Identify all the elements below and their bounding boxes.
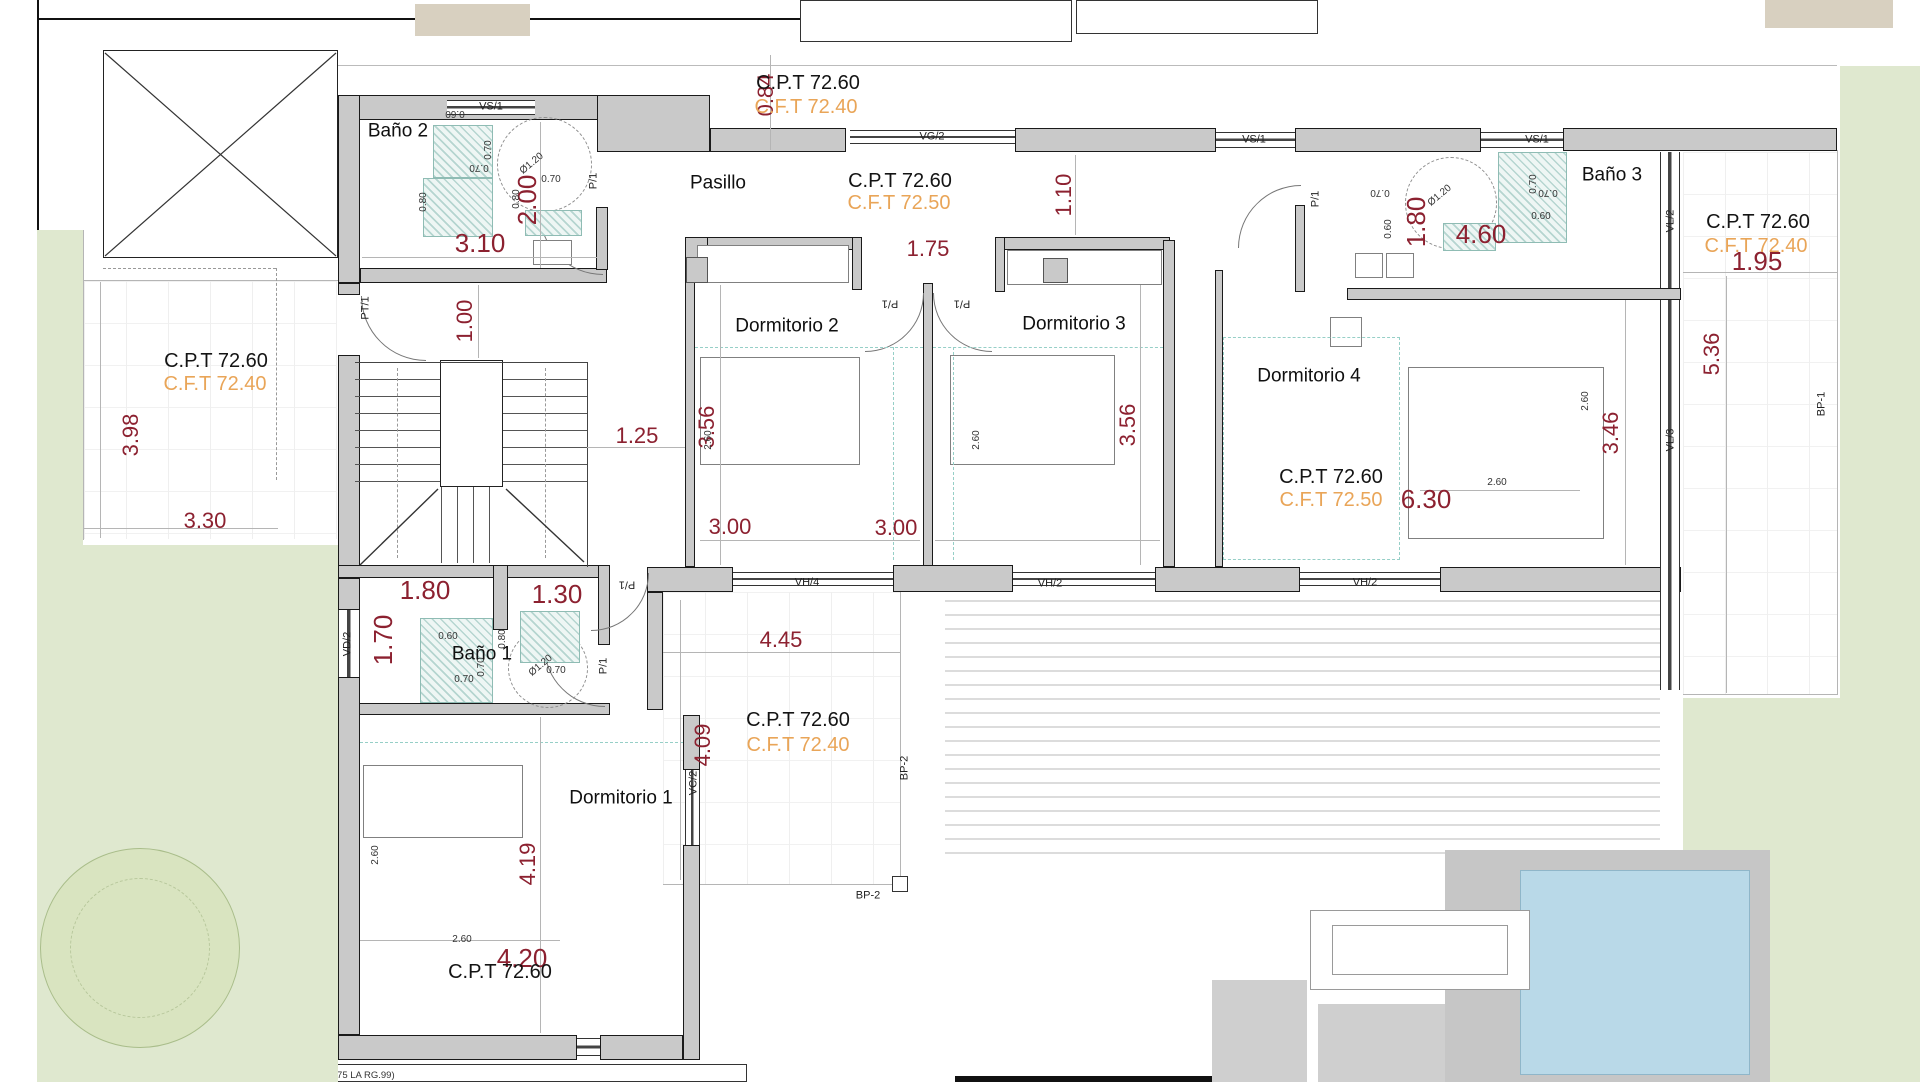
- opening-label-vc2: VC/2: [689, 771, 700, 795]
- dim-label: 3.10: [455, 230, 506, 256]
- dim-label: 1.80: [400, 577, 451, 603]
- dim-label: 1.30: [532, 581, 583, 607]
- dim-label-small: 0.70: [1370, 187, 1389, 197]
- dashed-teal-line: [933, 347, 1163, 348]
- window-vs1: [1481, 132, 1563, 148]
- vanity-basin: [1386, 253, 1414, 278]
- wall: [338, 703, 610, 715]
- wall: [597, 95, 710, 152]
- wall: [493, 565, 508, 630]
- closet: [1007, 250, 1162, 285]
- opening-label-vl3: VL/3: [1666, 429, 1677, 452]
- level-cft: C.F.T 72.40: [163, 374, 266, 394]
- room-label-bano2: Baño 2: [368, 122, 428, 141]
- opening-label-p1: P/1: [619, 579, 636, 590]
- stair-edge: [355, 362, 587, 363]
- dim-label: 3.46: [1600, 412, 1622, 455]
- dim-line: [663, 652, 900, 653]
- dim-label-small: 0.80: [512, 189, 522, 208]
- wall: [338, 95, 360, 283]
- closet: [697, 245, 849, 283]
- dim-line: [1625, 300, 1626, 565]
- dim-label: 3.00: [875, 517, 918, 539]
- level-cpt: C.P.T 72.60: [746, 710, 850, 730]
- room-label-bano1: Baño 1: [452, 645, 512, 664]
- toilet: [533, 240, 572, 265]
- opening-label-vh4: VH/4: [795, 578, 819, 589]
- opening-label-vg2: VG/2: [919, 132, 944, 143]
- dashed-teal-line: [695, 347, 923, 348]
- door-dorm3: [909, 210, 1076, 377]
- window-vh2: [1013, 572, 1155, 586]
- dim-label: 1.80: [1403, 197, 1429, 248]
- dim-label-small: 0.60: [438, 632, 457, 642]
- sheet-swatch: [415, 4, 530, 36]
- dim-label: 4.09: [692, 724, 714, 767]
- sheet-swatch: [1765, 0, 1893, 28]
- wall: [1440, 567, 1681, 592]
- opening-label-p1: P/1: [882, 298, 899, 309]
- line: [1683, 694, 1837, 695]
- opening-label-vl2: VL/2: [1666, 210, 1677, 233]
- dim-line: [83, 528, 278, 529]
- dim-label: 3.98: [120, 414, 142, 457]
- room-label-dormitorio2: Dormitorio 2: [735, 317, 838, 336]
- dim-line: [1726, 276, 1727, 693]
- room-label-bano3: Baño 3: [1582, 166, 1642, 185]
- dashed-line: [103, 268, 276, 269]
- door-dorm4: [1212, 159, 1390, 337]
- wall: [647, 567, 733, 592]
- dim-label-small: 0.60: [1384, 219, 1394, 238]
- opening-label-p1: P/1: [599, 658, 610, 675]
- opening-label-p1: P/1: [589, 173, 600, 190]
- opening-label-vh2: VH/2: [1353, 578, 1377, 589]
- wall: [1163, 240, 1175, 567]
- line: [83, 230, 84, 540]
- dim-line: [540, 717, 541, 1033]
- dim-label: 1.75: [907, 238, 950, 260]
- opening-label-vs1: VS/1: [1525, 135, 1549, 146]
- dim-label-small: 2.60: [371, 845, 381, 864]
- dim-label-small: 0.70: [454, 675, 473, 685]
- wall: [1215, 270, 1223, 567]
- window-gap: [577, 1038, 600, 1056]
- dim-label: 1.70: [370, 615, 396, 666]
- wall: [1155, 567, 1300, 592]
- dim-label: 1.10: [1053, 174, 1075, 217]
- dim-label-small: 0.70: [541, 175, 560, 185]
- window-vl3: [1660, 300, 1680, 690]
- wall: [600, 1035, 683, 1060]
- opening-label-bp1: BP-1: [1817, 392, 1828, 416]
- wall: [923, 283, 933, 567]
- deck-terrace: [945, 600, 1660, 855]
- sheet-box: [800, 0, 1072, 42]
- void-crossed-box: [103, 50, 338, 258]
- wall: [893, 565, 1013, 592]
- stair-treads-lower: [441, 487, 503, 563]
- wall: [683, 845, 700, 1060]
- opening-label-bp2: BP-2: [856, 891, 880, 902]
- paving-feature-inner: [1332, 925, 1508, 975]
- line: [1837, 150, 1838, 695]
- wall: [1015, 128, 1216, 152]
- dim-line: [478, 285, 479, 358]
- wall: [338, 677, 360, 1035]
- wall: [710, 128, 846, 152]
- dim-label: 5.36: [1701, 333, 1723, 376]
- line: [83, 280, 338, 281]
- bed: [363, 765, 523, 838]
- corner-marker: [892, 876, 908, 892]
- floor-plan: VERIFICACION VENTILACION (ARTICULO 40.75…: [0, 0, 1920, 1082]
- dim-line: [100, 282, 101, 538]
- dim-label: 4.60: [1456, 221, 1507, 247]
- garden-right: [1840, 66, 1920, 1082]
- dim-label: 6.30: [1401, 486, 1452, 512]
- dim-label: 3.30: [184, 510, 227, 532]
- pool: [1520, 870, 1750, 1075]
- dim-label: 3.00: [709, 516, 752, 538]
- level-cft: C.F.T 72.50: [847, 193, 950, 213]
- opening-label-bp2: BP-2: [900, 756, 911, 780]
- level-cft: C.F.T 72.50: [1279, 490, 1382, 510]
- level-cpt: C.P.T 72.60: [1706, 212, 1810, 232]
- opening-label-p1: P/1: [1311, 191, 1322, 208]
- roof-line: [338, 65, 1837, 66]
- paving-band: [1212, 980, 1307, 1082]
- dim-label: 3.56: [1117, 404, 1139, 447]
- dim-label-small: 0.80: [419, 192, 429, 211]
- stair-walkline: [545, 368, 546, 558]
- dim-label: 4.19: [517, 843, 539, 886]
- wall: [1347, 288, 1681, 300]
- dashed-teal-line: [953, 347, 954, 560]
- room-label-dormitorio1: Dormitorio 1: [569, 789, 672, 808]
- opening-label-vd2: VD/2: [343, 632, 354, 656]
- dim-label-small: 0.70: [484, 140, 494, 159]
- dashed-teal-line: [360, 742, 683, 743]
- dim-label-small: 2.60: [452, 935, 471, 945]
- wall: [338, 1035, 577, 1060]
- wall: [338, 283, 360, 295]
- level-cpt: C.P.T 72.60: [848, 171, 952, 191]
- level-cft: C.F.T 72.40: [1704, 236, 1807, 256]
- closet-block: [1043, 258, 1068, 283]
- dim-label: 1.00: [454, 300, 476, 343]
- dim-label-small: 2.60: [972, 430, 982, 449]
- closet-block: [686, 257, 708, 283]
- opening-label-vs1: VS/1: [479, 102, 503, 113]
- dim-label-small: 2.60: [1487, 478, 1506, 488]
- dim-label: 4.45: [760, 629, 803, 651]
- dim-label-small: 0.60: [445, 108, 464, 118]
- level-cpt: C.P.T 72.60: [756, 73, 860, 93]
- vanity-basin: [1355, 253, 1383, 278]
- dim-label-small: 0.70: [546, 666, 565, 676]
- stair-walkline: [397, 368, 398, 558]
- opening-label-p1: P/1: [954, 298, 971, 309]
- room-label-dormitorio4: Dormitorio 4: [1257, 367, 1360, 386]
- room-label-pasillo: Pasillo: [690, 174, 746, 193]
- stair-landing: [440, 360, 503, 487]
- terrace-right-floor: [1683, 152, 1837, 695]
- dashed-line: [276, 268, 277, 480]
- level-cft: C.F.T 72.40: [754, 97, 857, 117]
- dim-line: [700, 540, 920, 541]
- line: [900, 592, 901, 885]
- sheet-box: [1076, 0, 1318, 34]
- dim-line: [935, 540, 1160, 541]
- dim-label: 1.25: [616, 425, 659, 447]
- level-cft: C.F.T 72.40: [746, 735, 849, 755]
- paving-band: [1318, 1004, 1445, 1082]
- level-cpt: C.P.T 72.60: [164, 351, 268, 371]
- wall: [1295, 128, 1481, 152]
- bed: [700, 357, 860, 465]
- opening-label-pt1: PT/1: [361, 296, 372, 319]
- dim-label-small: 0.70: [1538, 187, 1557, 197]
- opening-label-vh2: VH/2: [1038, 579, 1062, 590]
- dim-line: [1140, 285, 1141, 565]
- dim-label-small: 2.60: [1581, 391, 1591, 410]
- dim-label-small: 0.70: [469, 162, 488, 172]
- level-cpt: C.P.T 72.60: [448, 962, 552, 982]
- room-label-dormitorio3: Dormitorio 3: [1022, 315, 1125, 334]
- level-cpt: C.P.T 72.60: [1279, 467, 1383, 487]
- dim-line: [680, 600, 681, 880]
- wall: [1563, 128, 1837, 151]
- wall: [685, 237, 695, 567]
- sheet-bar: [955, 1076, 1235, 1082]
- dim-label-small: 2.60: [704, 430, 714, 449]
- terrace-left-floor: [84, 281, 337, 539]
- opening-label-vs1: VS/1: [1242, 135, 1266, 146]
- dim-label-small: 0.60: [1531, 212, 1550, 222]
- tree-inner: [70, 878, 210, 1018]
- wall: [338, 578, 360, 610]
